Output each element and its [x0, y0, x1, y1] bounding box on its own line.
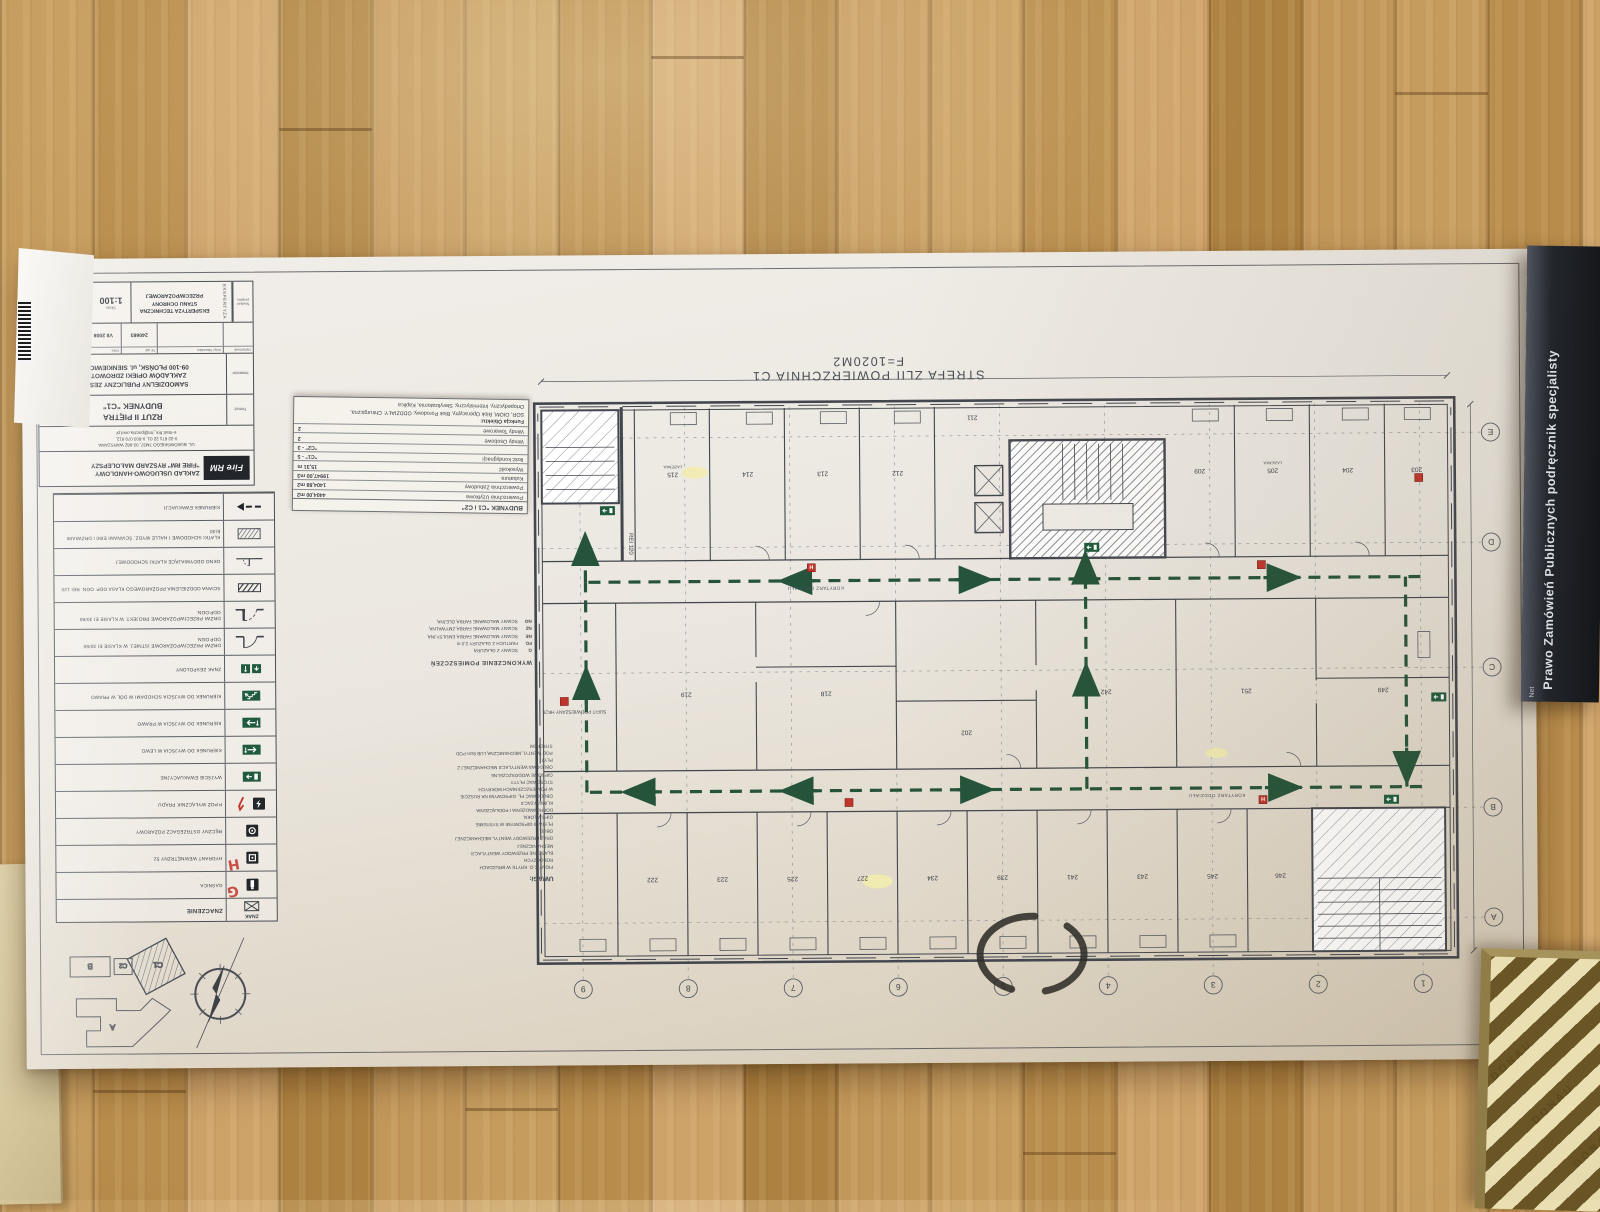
book-spine-title: Prawo Zamówień Publicznych podręcznik sp… [1541, 260, 1567, 690]
svg-text:205: 205 [1267, 467, 1278, 474]
svg-text:213: 213 [817, 470, 828, 477]
legend-header-znak: ZNAK [226, 899, 277, 921]
evacuation-routes [580, 530, 1422, 793]
company-row: Fire RM ZAKŁAD USŁUGOWO-HANDLOWY "FIRE R… [40, 450, 254, 486]
hand-drawn-circle-mark [967, 906, 1098, 1003]
legend-label: KIERUNEK DO WYJŚCIA W PRAWO [55, 710, 224, 737]
sig-header: Imię i Nazwisko [158, 346, 223, 353]
uwagi-title: UWAGI: [453, 873, 553, 884]
svg-text:239: 239 [997, 873, 1008, 880]
temat-label: Temat: [226, 395, 253, 425]
svg-text:214: 214 [742, 470, 753, 477]
fire-door-existing-icon [224, 629, 275, 655]
sig-header: Nr upr. [122, 346, 157, 353]
wood-joint [93, 1090, 186, 1093]
sheet-content-rotated: 1 2 3 4 5 6 7 8 9 [21, 249, 1539, 1070]
svg-text:234: 234 [927, 874, 938, 881]
svg-text:211: 211 [967, 414, 978, 421]
book-spine: Prawo Zamówień Publicznych podręcznik sp… [1521, 245, 1600, 702]
svg-text:212: 212 [892, 469, 903, 476]
stadium-label: Stadium projektu [232, 282, 252, 322]
legend-row-znak-zespolony: ZNAK ZESPOLONY [55, 655, 275, 684]
legend-row-kierunek-schody: KIERUNEK DO WYJŚCIA SCHODAMI W DÓŁ W PRA… [55, 682, 275, 711]
svg-text:9: 9 [581, 984, 586, 994]
wood-joint [1023, 1152, 1116, 1155]
legend-label: HYDRANT WEWNĘTRZNY 52 [56, 845, 225, 872]
legend-label: WYJŚCIE EWAKUACYJNE [56, 764, 225, 791]
svg-text:6: 6 [896, 982, 901, 992]
power-cutoff-icon [225, 791, 276, 817]
legend-label: P.POŻ WYŁĄCZNIK PRĄDU [56, 791, 225, 818]
sig-header: Opracował [224, 346, 253, 353]
legend-label: DRZWI PRZECIWPOŻAROWE ISTNIEJ. W KLASIE … [55, 629, 224, 656]
wood-joint [465, 1108, 558, 1111]
photo-of-floorplan: { "book": { "spine_text": "Prawo Zamówie… [0, 0, 1600, 1200]
fire-rm-logo: Fire RM [204, 456, 250, 480]
svg-text:REI 120: REI 120 [627, 533, 633, 555]
finishes-row: NZŚCIANY MALOWANE FARBĄ ZMYWALNĄ [422, 625, 532, 633]
finishes-row: GŚCIANY Z GŁAZURĄ [422, 647, 532, 655]
ekspertyza-title: EKSPERTYZA TECHNICZNA STANU OCHRONY PRZE… [130, 282, 217, 323]
legend-row-ostrzegacz: RĘCZNY OSTRZEGACZ POŻAROWY [56, 817, 276, 846]
staircase-bottom-right [541, 410, 619, 504]
x-box-icon [244, 901, 260, 912]
uwagi-notes: UWAGI: PIONY C.O. KRYTE W BRUZDACH ROBOC… [453, 743, 554, 884]
legend-row-wyjscie: WYJŚCIE EWAKUACYJNE [56, 763, 276, 792]
uwagi-line: GIPSOWE WODOSZCZELNE [453, 771, 553, 779]
legend-label: KIERUNEK DO WYJŚCIA SCHODAMI W DÓŁ W PRA… [55, 683, 224, 710]
finishes-key: WYKONCZENIE POMIESZCZEŃ GŚCIANY Z GŁAZUR… [422, 617, 532, 666]
svg-text:C1: C1 [153, 960, 163, 969]
legend-row-sciana-rei: ŚCIANA ODDZIELENIA PPOŻAROWEGO KLASA ODP… [54, 574, 274, 603]
svg-text:202: 202 [961, 729, 972, 736]
company-address: UL. BUKOWSKIEGO 7M37, 03-982 WARSZAWA 0-… [39, 425, 253, 451]
svg-text:222: 222 [647, 876, 658, 883]
red-handwritten-mark: H [226, 856, 240, 872]
svg-text:227: 227 [857, 874, 868, 881]
legend-row-gasnica: G GAŚNICA [56, 871, 276, 900]
extinguisher-icon: G [225, 872, 276, 898]
building-outlines: A C1 C2 B [70, 938, 186, 1047]
uwagi-line: DOPROWADZENIA I PODŁĄCZENIA KLIMATYZACJI [453, 799, 553, 814]
svg-text:219: 219 [680, 691, 691, 698]
wood-joint [279, 128, 372, 131]
legend-header: ZNAK ZNACZENIE [57, 898, 277, 923]
uwagi-line: OBUDOWAĆ PŁ. GIPSOWYMI NA RUSZCIE [453, 792, 553, 800]
bed-symbols [576, 407, 1434, 951]
barcode-sticker [16, 300, 33, 362]
svg-text:KORYTARZ ODDZIAŁU: KORYTARZ ODDZIAŁU [787, 586, 844, 591]
exit-stairs-down-icon [224, 683, 275, 709]
corridor-walls [542, 555, 1450, 813]
svg-text:7: 7 [791, 983, 796, 993]
legend-label: RĘCZNY OSTRZEGACZ POŻAROWY [56, 818, 225, 845]
wood-joint [651, 56, 744, 59]
stamp-function: Funkcja Obiektu: SOR, OIOM, Blok Operacy… [294, 396, 528, 426]
legend-row-wylacznik: P.POŻ WYŁĄCZNIK PRĄDU [56, 790, 276, 819]
legend-row-drzwi-istniejace: DRZWI PRZECIWPOŻAROWE ISTNIEJ. W KLASIE … [55, 628, 275, 657]
svg-text:ŁAZIENKA: ŁAZIENKA [1263, 460, 1282, 464]
svg-text:A: A [1491, 912, 1497, 922]
exit-left-icon [225, 737, 276, 763]
scale-cell: Skala 1:100 [90, 283, 130, 323]
svg-text:8: 8 [686, 984, 691, 994]
staircase-center [974, 439, 1165, 558]
book-publisher: Net [1529, 687, 1536, 698]
svg-text:H: H [809, 563, 813, 569]
alarm-button-icon [225, 818, 276, 844]
svg-text:ŁAZIENKA: ŁAZIENKA [663, 465, 682, 469]
svg-text:243: 243 [1137, 872, 1148, 879]
legend-label: KLATKI SCHODOWE I HALLE WYDZ. ŚCIANAMI E… [54, 521, 223, 548]
legend-label: DRZWI PRZECIWPOŻAROWE PROJEKT. W KLASIE … [55, 602, 224, 629]
legend-header-znaczenie: ZNACZENIE [57, 899, 226, 922]
exit-right-icon [224, 710, 275, 736]
fire-door-designed-icon [224, 602, 275, 628]
finishes-row: NEŚCIANY MALOWANE FARBĄ EMULSYJNĄ [422, 632, 532, 640]
legend-row-kierunek-prawo: KIERUNEK DO WYJŚCIA W PRAWO [55, 709, 275, 738]
svg-text:223: 223 [717, 875, 728, 882]
envelope-pattern: DONAU DONAU DONAU DONAU DONAU DONAU DONA… [1485, 957, 1600, 1212]
north-compass [190, 938, 251, 1048]
uwagi-line: ORAZ PRZEWODY WENTYL.MECHANICZNEJ OBUD. [453, 828, 553, 843]
svg-text:245: 245 [1207, 872, 1218, 879]
inwestor-label: Inwestor: [226, 354, 253, 394]
folded-paper-corner [14, 248, 94, 428]
svg-text:B: B [1490, 802, 1496, 812]
ceiling-note: SUFIT PODWIESZANY HK28 [516, 708, 606, 714]
svg-text:3: 3 [1211, 980, 1216, 990]
svg-text:1: 1 [1421, 979, 1426, 989]
uwagi-line: POD WENTYL.MECHANICZNĄ LUB 8cm POD STROP… [453, 743, 553, 758]
svg-text:249: 249 [1377, 686, 1388, 693]
svg-text:225: 225 [787, 875, 798, 882]
svg-text:E: E [1487, 427, 1493, 437]
svg-text:C2: C2 [119, 962, 128, 969]
finishes-title: WYKONCZENIE POMIESZCZEŃ [422, 656, 532, 666]
svg-text:4: 4 [1106, 981, 1111, 991]
donau-envelope: DONAU DONAU DONAU DONAU DONAU DONAU DONA… [1475, 948, 1600, 1211]
svg-text:C: C [1489, 662, 1495, 672]
uwagi-line: PIONY C.O. KRYTE W BRUZDACH ROBOCZYCH [453, 856, 553, 871]
legend-row-drzwi-projektowane: DRZWI PRZECIWPOŻAROWE PROJEKT. W KLASIE … [55, 601, 275, 630]
svg-text:246: 246 [1275, 871, 1286, 878]
legend-row-okno-oddymiajace: OKNO ODDYMIAJĄCE KLATKI SCHODOWEJ [54, 547, 274, 576]
svg-text:242: 242 [1100, 688, 1111, 695]
legend-table: ZNAK ZNACZENIE G GAŚNICA H HYDRANT WEWNĘ… [53, 492, 278, 924]
legend-row-kierunek-ewakuacji: KIERUNEK EWAKUACJI [54, 493, 274, 522]
svg-text:B: B [87, 962, 92, 971]
svg-text:215: 215 [667, 471, 678, 478]
evacuation-arrows [585, 532, 1407, 793]
legend-label: GAŚNICA [56, 872, 225, 899]
fire-zone-label: STREFA ZLII POWIERZCHNIA C1 F=1020M2 [718, 353, 1018, 383]
company-name: ZAKŁAD USŁUGOWO-HANDLOWY "FIRE RM" RYSZA… [91, 460, 200, 478]
room-sublabels: ŁAZIENKA ŁAZIENKA [663, 460, 1282, 468]
legend-row-klatki-schodowe: KLATKI SCHODOWE I HALLE WYDZ. ŚCIANAMI E… [54, 520, 274, 549]
site-key-plan: A C1 C2 B [56, 925, 283, 1061]
uwagi-line: OBUDOWA WENTYLACJI MECHANICZNEJ Z PŁYT [453, 757, 553, 772]
legend-label: OKNO ODDYMIAJĄCE KLATKI SCHODOWEJ [54, 548, 223, 575]
uwagi-line: BLASZANE PRZEWODY WENTYLACJI MECHANICZNE… [453, 842, 553, 857]
legend-row-kierunek-lewo: KIERUNEK DO WYJŚCIA W LEWO [56, 736, 276, 765]
combined-sign-icon [224, 656, 275, 682]
ekspertyza-side-label: EKSPERTYZA [217, 282, 232, 322]
svg-text:218: 218 [820, 690, 831, 697]
svg-text:2: 2 [1316, 979, 1321, 989]
svg-text:209: 209 [1194, 467, 1205, 474]
uwagi-line: PŁYTAMI GIPSOWYMI W SYSTEMIE GIPS.WŁÓKN. [453, 814, 553, 829]
fire-wall-icon [223, 575, 274, 601]
fire-separation-wall: REI 120 [621, 407, 633, 561]
floorplan-sheet: 1 2 3 4 5 6 7 8 9 [21, 249, 1539, 1070]
svg-text:A: A [109, 1023, 115, 1032]
legend-label: KIERUNEK EWAKUACJI [54, 494, 223, 521]
svg-text:241: 241 [1067, 873, 1078, 880]
svg-text:D: D [1488, 537, 1494, 547]
legend-label: ŚCIANA ODDZIELENIA PPOŻAROWEGO KLASA ODP… [54, 575, 223, 602]
svg-text:203: 203 [1411, 466, 1422, 473]
legend-row-hydrant: H HYDRANT WEWNĘTRZNY 52 [56, 844, 276, 873]
uwagi-line: W POMIESZCZENIACH MOKRYCH STOSOWAĆ PŁYTY [453, 778, 553, 793]
staircase-top-left [1312, 807, 1446, 951]
finishes-row: FGFARTUCH Z GŁAZURY 2,0 m [422, 639, 532, 647]
emergency-exit-icon [225, 764, 276, 790]
wood-joint [1395, 92, 1488, 95]
legend-label: ZNAK ZESPOLONY [55, 656, 224, 683]
finishes-row: NOŚCIANY MALOWANE FARBĄ OLEJNĄ [422, 617, 532, 625]
building-data-stamp: BUDYNEK "C1 i C2" Powierzchnia Użytkowa4… [292, 395, 530, 514]
diagonal-stripe-pattern: DONAU DONAU DONAU DONAU DONAU DONAU DONA… [1485, 957, 1600, 1212]
door-swings [655, 542, 1371, 827]
smoke-vent-window-icon [223, 548, 274, 574]
hydrant-icon: H [225, 845, 276, 871]
stairwell-hatch-icon [223, 521, 274, 547]
license-number: 240683 [122, 323, 157, 346]
fire-equipment-symbols: H H [559, 474, 1425, 809]
legend-label: KIERUNEK DO WYJŚCIA W LEWO [56, 737, 225, 764]
evacuation-direction-icon [223, 494, 274, 520]
svg-text:251: 251 [1240, 687, 1251, 694]
svg-text:204: 204 [1342, 466, 1353, 473]
svg-text:H: H [1261, 795, 1265, 801]
svg-text:KORYTARZ ODDZIAŁU: KORYTARZ ODDZIAŁU [1189, 793, 1246, 798]
